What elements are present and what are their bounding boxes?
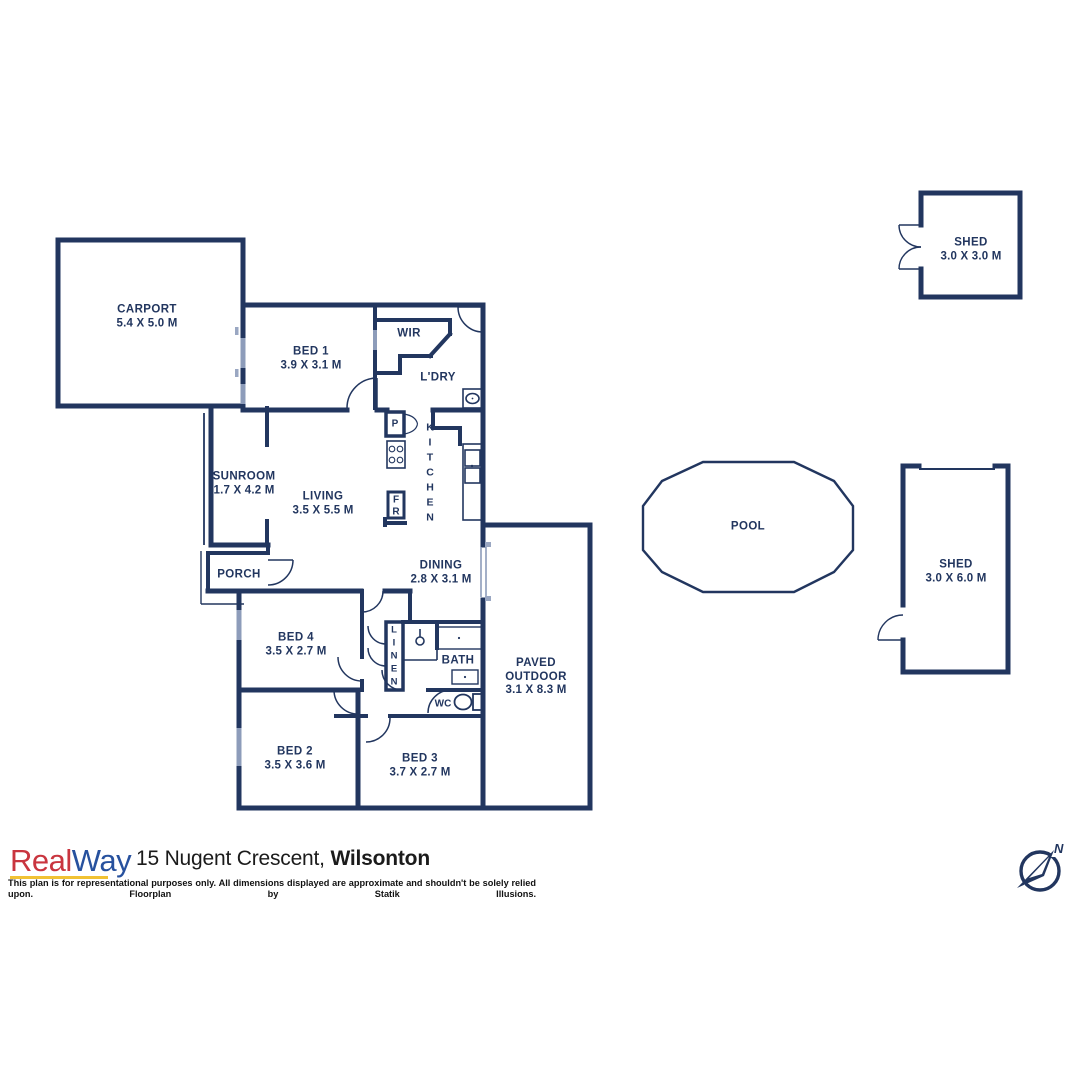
- room-label-shed-small: SHED3.0 X 3.0 M: [940, 237, 1001, 264]
- shed-small-doors: [899, 225, 921, 269]
- room-label-bed3: BED 33.7 X 2.7 M: [389, 753, 450, 780]
- room-label-linen: LINEN: [389, 625, 400, 690]
- pantry-label: P: [392, 419, 399, 430]
- fridge-label-f: F: [393, 495, 399, 506]
- room-label-living: LIVING3.5 X 5.5 M: [292, 491, 353, 518]
- room-label-kitchen: KITCHEN: [424, 422, 436, 527]
- room-label-shed-large: SHED3.0 X 6.0 M: [925, 559, 986, 586]
- logo-way-text: Way: [72, 843, 131, 878]
- property-address: 15 Nugent Crescent, Wilsonton: [136, 847, 430, 871]
- windows: [235, 327, 491, 766]
- room-label-bath: BATH: [442, 654, 475, 668]
- room-label-pool: POOL: [731, 520, 765, 534]
- address-suburb: Wilsonton: [330, 847, 430, 870]
- room-label-porch: PORCH: [217, 568, 261, 582]
- logo-real-text: Real: [10, 843, 72, 878]
- svg-text:N: N: [1054, 841, 1064, 856]
- fridge-label-r: R: [392, 507, 399, 518]
- room-label-bed2: BED 23.5 X 3.6 M: [264, 746, 325, 773]
- room-label-carport: CARPORT5.4 X 5.0 M: [116, 304, 177, 331]
- floorplan-page: CARPORT5.4 X 5.0 M BED 13.9 X 3.1 M WIR …: [0, 0, 1080, 1080]
- room-label-dining: DINING2.8 X 3.1 M: [410, 560, 471, 587]
- compass-north-icon: N: [1008, 838, 1074, 904]
- address-street: 15 Nugent Crescent,: [136, 847, 325, 870]
- room-label-wir: WIR: [397, 327, 421, 341]
- room-label-paved-outdoor: PAVEDOUTDOOR 3.1 X 8.3 M: [505, 657, 567, 698]
- fixtures: [201, 389, 482, 710]
- realway-logo: RealWay: [10, 843, 131, 879]
- exterior-walls: [208, 305, 590, 808]
- room-label-wc: WC: [435, 699, 452, 710]
- room-label-bed1: BED 13.9 X 3.1 M: [280, 346, 341, 373]
- room-label-bed4: BED 43.5 X 2.7 M: [265, 632, 326, 659]
- room-label-sunroom: SUNROOM1.7 X 4.2 M: [213, 471, 276, 498]
- shed-large-door-arc: [878, 615, 903, 640]
- disclaimer-text: This plan is for representational purpos…: [8, 878, 536, 900]
- floorplan-drawing: [0, 0, 1080, 1080]
- room-label-ldry: L'DRY: [420, 371, 456, 385]
